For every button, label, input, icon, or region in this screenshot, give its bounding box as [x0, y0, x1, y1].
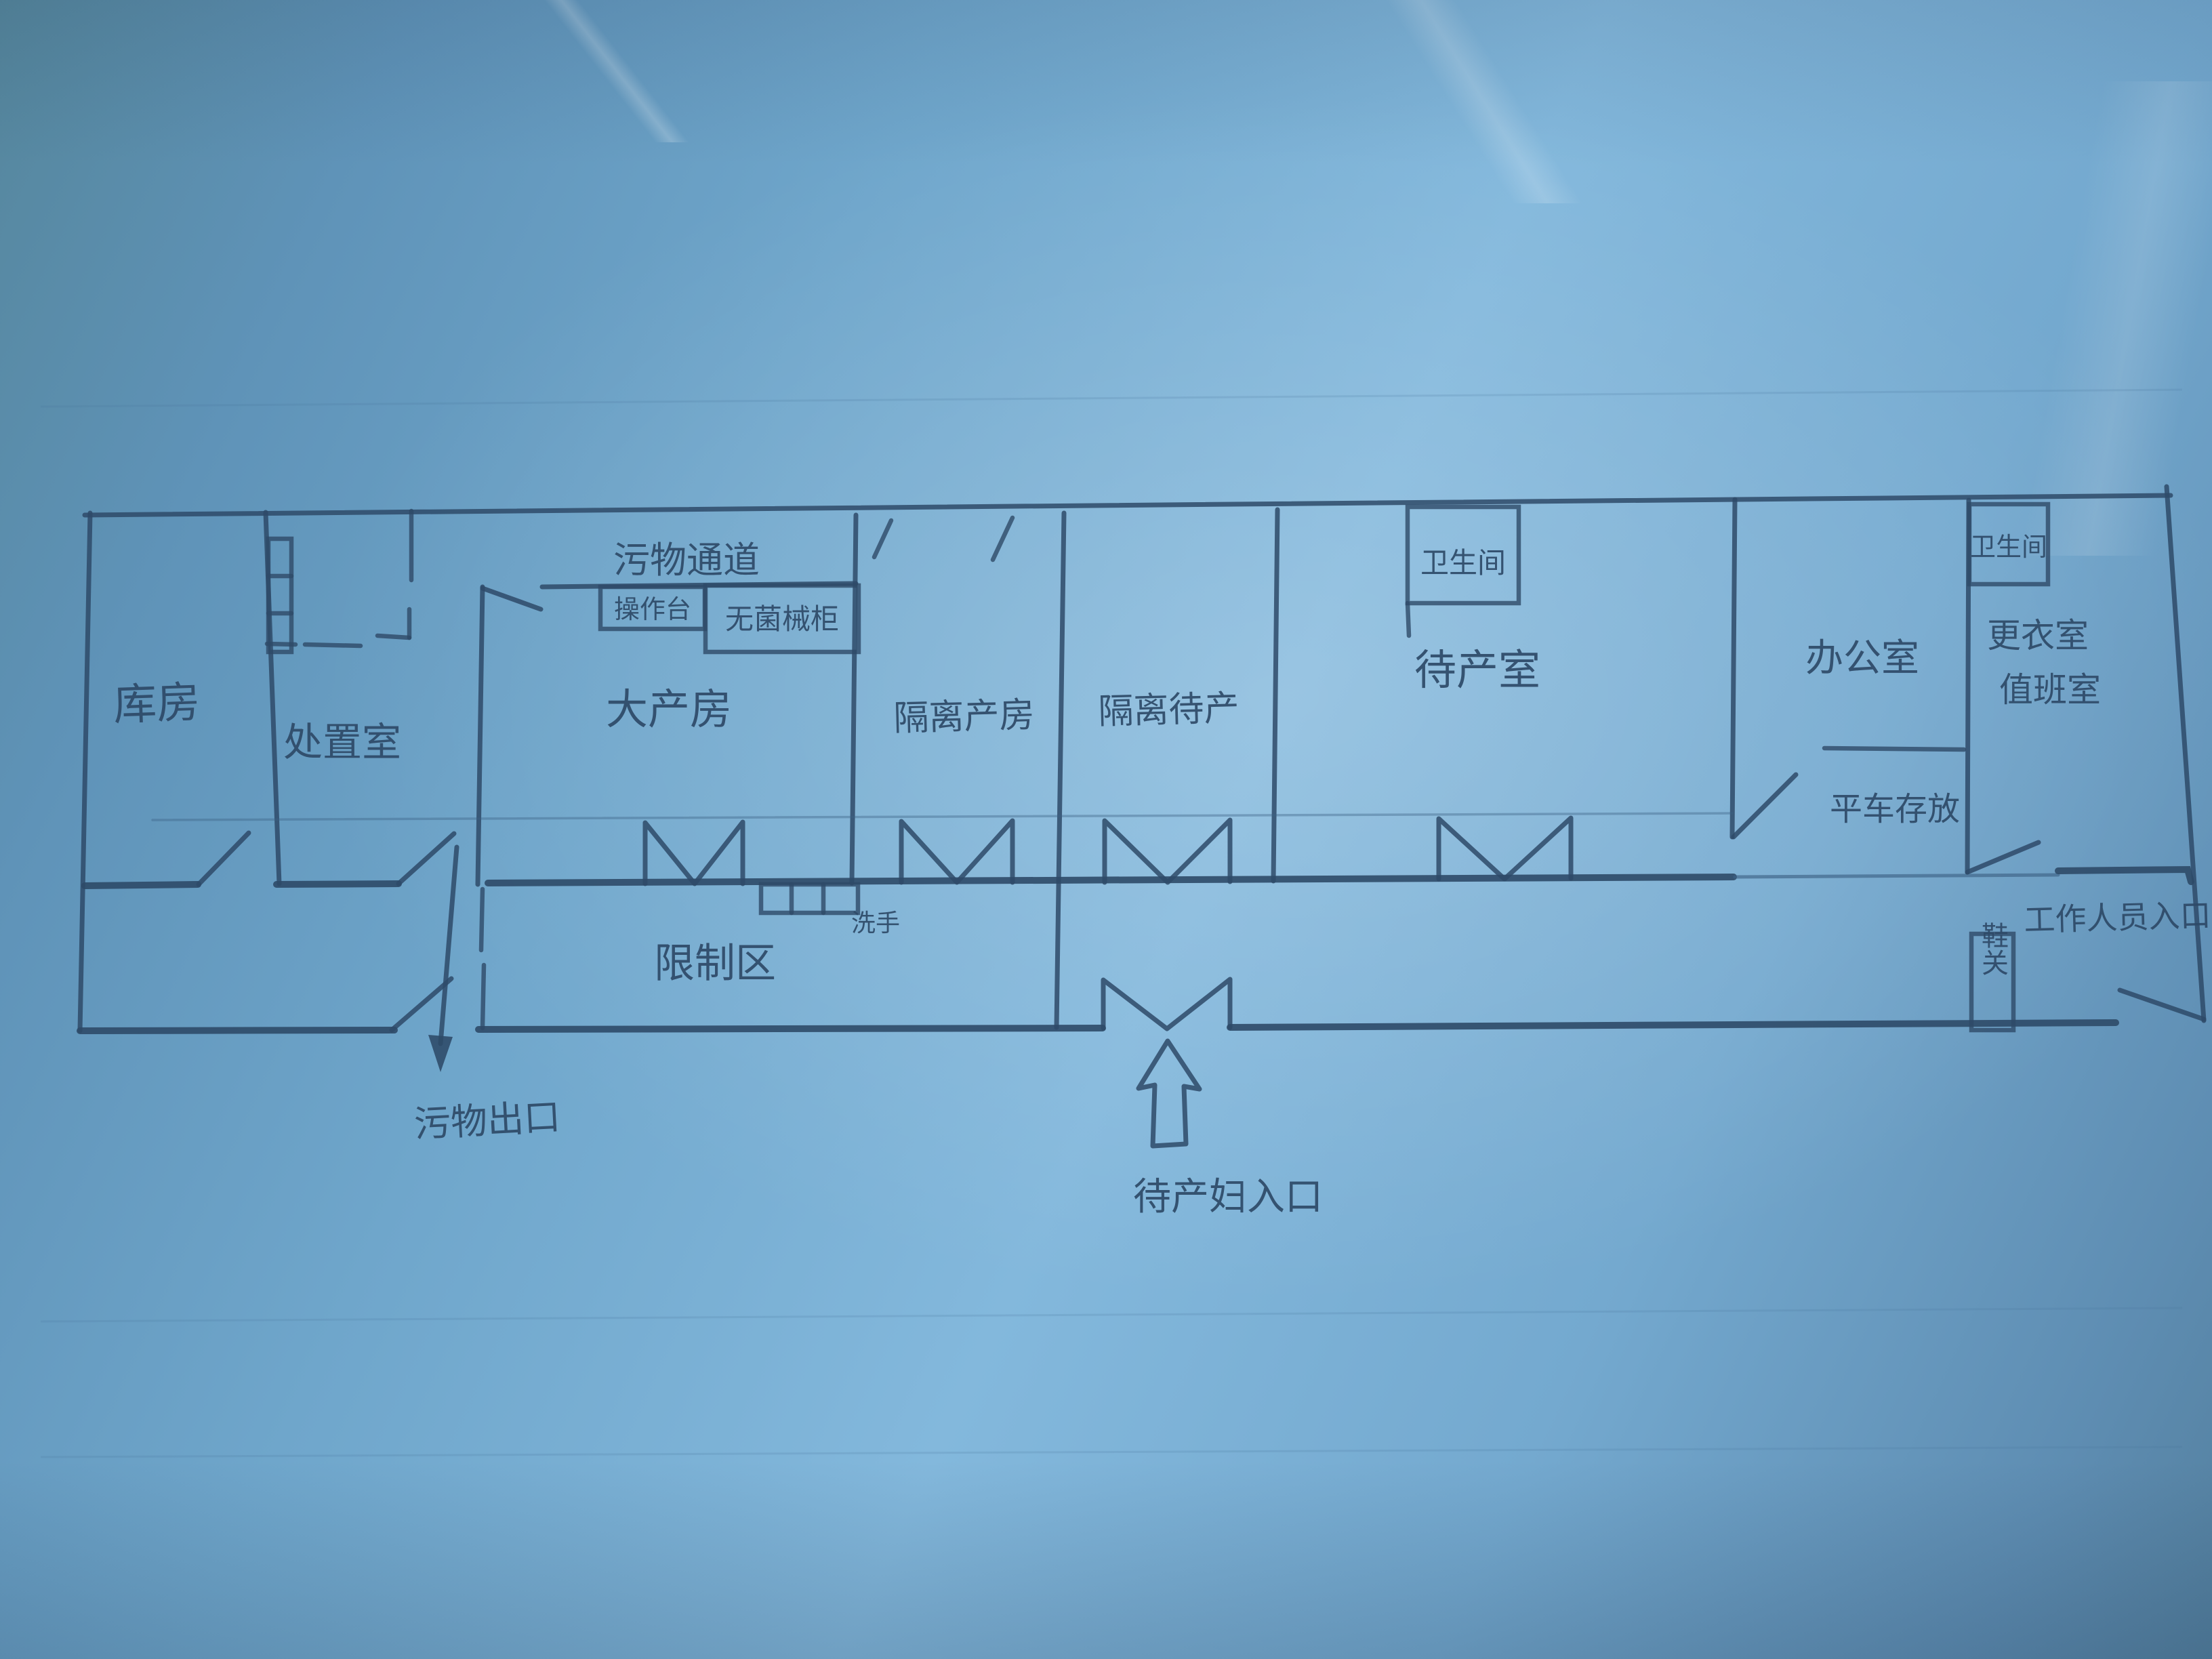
- top-wall-opening-tick-1: [874, 520, 891, 557]
- wall-main-divider: [1057, 513, 1064, 1027]
- door-changing-room: [1967, 842, 2039, 872]
- fixture-label-sterile-cabinet: 无菌械柜: [725, 603, 839, 635]
- waste-exit-arrow: [428, 847, 457, 1072]
- room-label-toilet-right: 卫生间: [1970, 533, 2047, 562]
- door-guide-line: [152, 813, 1732, 820]
- area-label-restricted: 限制区: [654, 941, 776, 986]
- room-label-storage: 库房: [112, 678, 201, 729]
- wall-isolationwaiting-waiting: [1273, 510, 1277, 881]
- room-label-treatment: 处置室: [283, 720, 401, 764]
- wall-waste-vestibule: [481, 889, 484, 1028]
- area-label-waste-corridor: 污物通道: [613, 540, 760, 581]
- double-door-waiting-room: [1439, 818, 1571, 879]
- entrance-label-waste-exit: 污物出口: [413, 1097, 562, 1145]
- entrance-label-mothers: 待产妇入口: [1133, 1175, 1323, 1218]
- fixture-label-handwash: 洗手: [851, 909, 900, 937]
- top-wall-opening-tick-2: [993, 518, 1012, 560]
- room-label-waiting: 待产室: [1414, 647, 1540, 694]
- door-storage: [199, 833, 249, 884]
- door-office: [1734, 775, 1796, 837]
- room-label-isolation-delivery: 隔离产房: [893, 695, 1035, 738]
- double-door-delivery-room: [645, 822, 743, 884]
- fixture-label-operating-table: 操作台: [614, 596, 691, 624]
- double-door-isolation-waiting: [1105, 820, 1230, 882]
- wall-bottom-mid: [478, 1028, 1103, 1029]
- room-label-office: 办公室: [1805, 636, 1919, 679]
- wall-delivery-isolation: [852, 515, 856, 883]
- area-label-cart-storage: 平车存放: [1830, 792, 1960, 827]
- entrance-label-staff: 工作人员入口: [2024, 897, 2211, 937]
- room-label-toilet-waiting: 卫生间: [1420, 547, 1506, 579]
- plan-drawing: 库房 处置室 污物通道 操作台 无菌械柜 大产房 隔离产房 隔离待产 卫生间 待…: [0, 0, 2212, 1659]
- fixture-label-shoe-barrier: 鞋关: [1978, 922, 2008, 976]
- wall-bottom-right: [1230, 1023, 2116, 1027]
- door-delivery-from-waste-corridor: [483, 588, 541, 609]
- door-staff-entrance: [2120, 990, 2204, 1019]
- wall-left: [80, 513, 90, 1031]
- floor-plan-photo: 库房 处置室 污物通道 操作台 无菌械柜 大产房 隔离产房 隔离待产 卫生间 待…: [0, 0, 2212, 1659]
- wall-corridor-a: [85, 884, 198, 886]
- wall-corridor-c: [488, 877, 1734, 883]
- room-label-duty: 值班室: [1999, 671, 2101, 709]
- paper-ruled-lines: [41, 390, 2182, 1457]
- room-label-changing: 更衣室: [1987, 617, 2089, 655]
- double-door-mothers-entrance: [1103, 979, 1230, 1029]
- room-label-isolation-waiting: 隔离待产: [1098, 689, 1240, 731]
- mothers-entrance-arrow: [1139, 1041, 1200, 1146]
- door-treatment: [398, 834, 454, 884]
- wall-bottom-left: [80, 1030, 394, 1031]
- wall-corridor-d-faint: [1735, 875, 2058, 877]
- wall-corridor-b: [276, 884, 398, 884]
- wall-delivery-left: [478, 587, 483, 884]
- fixtures: [268, 504, 2048, 1030]
- wall-staff-entrance-stub: [2058, 869, 2191, 882]
- room-label-delivery: 大产房: [606, 687, 732, 733]
- wall-treatment-partition-corner: [377, 636, 409, 638]
- wall-right: [2167, 487, 2204, 1021]
- double-door-isolation-delivery: [901, 821, 1012, 882]
- cart-storage-divider: [1824, 748, 1964, 750]
- handwash-sink-icon: [761, 884, 858, 913]
- wall-top: [85, 495, 2171, 515]
- wall-treatment-counter-dashes: [267, 644, 361, 646]
- wall-waiting-office: [1732, 499, 1735, 837]
